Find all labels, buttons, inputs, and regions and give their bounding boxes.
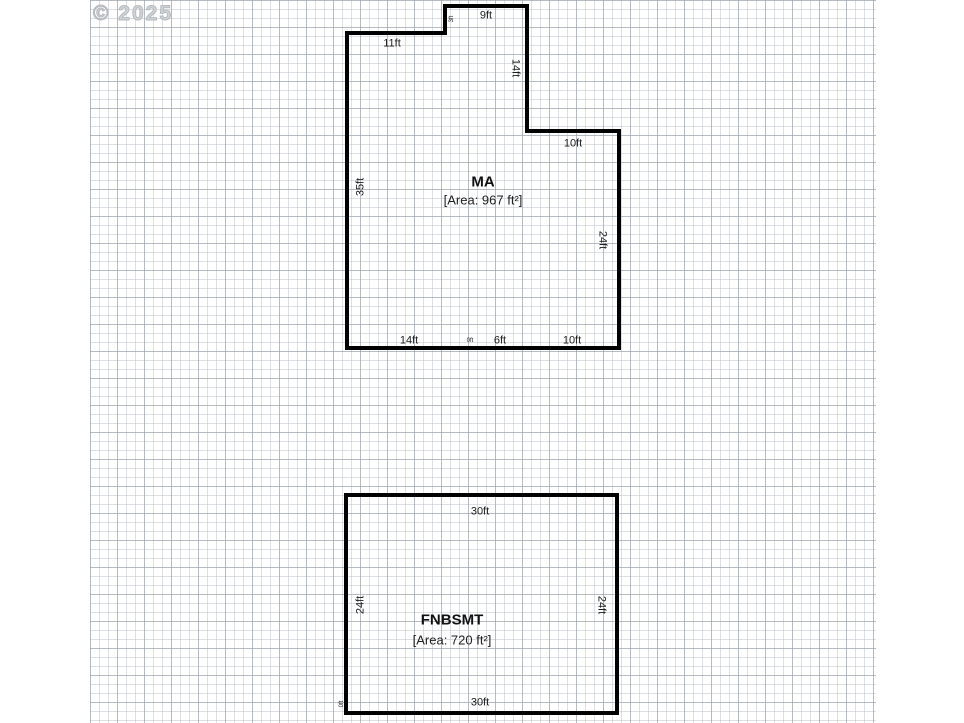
ma-dim-bottom-1: 14ft [400, 336, 418, 347]
ma-dim-bottom-tiny: 0ft [467, 338, 474, 344]
ma-dim-bottom-2: 6ft [494, 336, 506, 347]
ma-dim-bottom-3: 10ft [563, 336, 581, 347]
ma-dim-right-upper: 14ft [510, 59, 521, 77]
ma-dim-top: 9ft [480, 11, 492, 22]
fnbsmt-dim-corner-tiny: 0ft [339, 701, 345, 708]
fnbsmt-dim-left: 24ft [356, 596, 367, 614]
ma-dim-step-right: 10ft [564, 139, 582, 150]
fnbsmt-dim-top: 30ft [471, 507, 489, 518]
ma-dim-upper-left: 11ft [383, 39, 401, 50]
ma-dim-left: 35ft [356, 178, 367, 196]
ma-dim-notch-step: 3ft [449, 16, 455, 23]
ma-dim-right: 24ft [597, 231, 608, 249]
fnbsmt-dim-right: 24ft [596, 596, 607, 614]
fnbsmt-room-name: FNBSMT [421, 613, 484, 628]
fnbsmt-walls [346, 495, 617, 713]
floorplan-page: © 2025 9ft 3ft 11ft 14ft 10ft 35ft 24ft … [0, 0, 964, 723]
ma-room-area: [Area: 967 ft²] [444, 194, 523, 207]
ma-room-name: MA [471, 175, 494, 190]
fnbsmt-room-area: [Area: 720 ft²] [413, 634, 492, 647]
fnbsmt-dim-bottom: 30ft [471, 698, 489, 709]
